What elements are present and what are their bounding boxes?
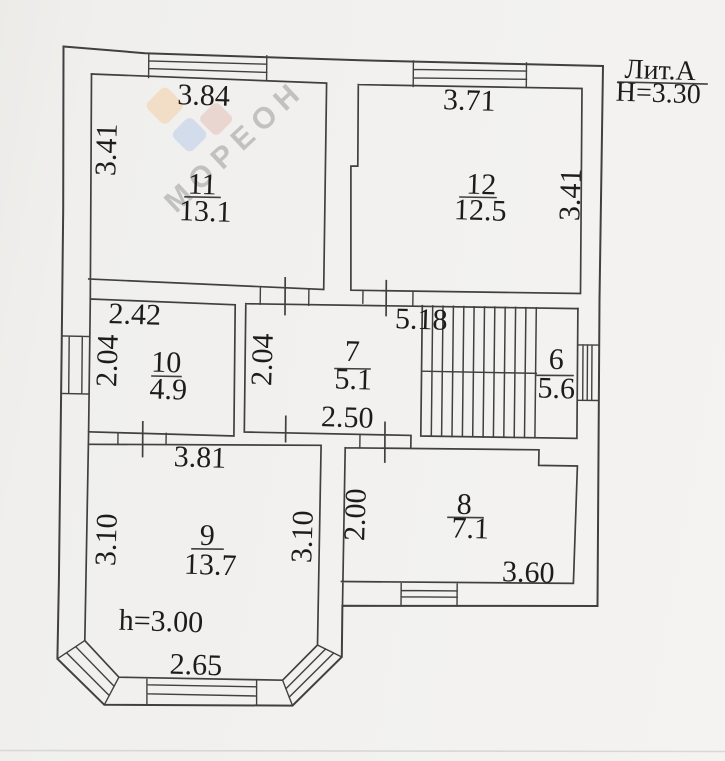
svg-text:3.41: 3.41 bbox=[553, 168, 588, 222]
svg-text:3.60: 3.60 bbox=[502, 555, 556, 590]
svg-text:13.7: 13.7 bbox=[184, 548, 238, 583]
svg-text:h=3.00: h=3.00 bbox=[118, 604, 203, 640]
svg-text:2.04: 2.04 bbox=[245, 333, 280, 387]
svg-text:3.71: 3.71 bbox=[443, 83, 497, 118]
svg-text:Н=3.30: Н=3.30 bbox=[615, 77, 701, 111]
svg-text:2.42: 2.42 bbox=[108, 297, 162, 332]
svg-text:2.50: 2.50 bbox=[321, 400, 375, 435]
svg-text:9: 9 bbox=[199, 519, 215, 552]
svg-text:3.84: 3.84 bbox=[177, 78, 231, 113]
svg-text:5.18: 5.18 bbox=[395, 302, 449, 337]
svg-text:3.10: 3.10 bbox=[285, 510, 320, 564]
svg-text:5.1: 5.1 bbox=[334, 362, 373, 396]
svg-text:5.6: 5.6 bbox=[537, 371, 576, 405]
svg-text:13.1: 13.1 bbox=[179, 194, 233, 229]
svg-text:3.41: 3.41 bbox=[89, 123, 124, 177]
svg-text:7.1: 7.1 bbox=[451, 511, 490, 545]
svg-text:12.5: 12.5 bbox=[454, 193, 508, 228]
svg-text:2.04: 2.04 bbox=[90, 334, 125, 388]
svg-text:3.10: 3.10 bbox=[89, 513, 124, 567]
svg-text:3.81: 3.81 bbox=[173, 440, 227, 475]
svg-text:4.9: 4.9 bbox=[149, 372, 188, 406]
svg-text:2.65: 2.65 bbox=[169, 648, 223, 683]
svg-text:2.00: 2.00 bbox=[338, 488, 373, 542]
